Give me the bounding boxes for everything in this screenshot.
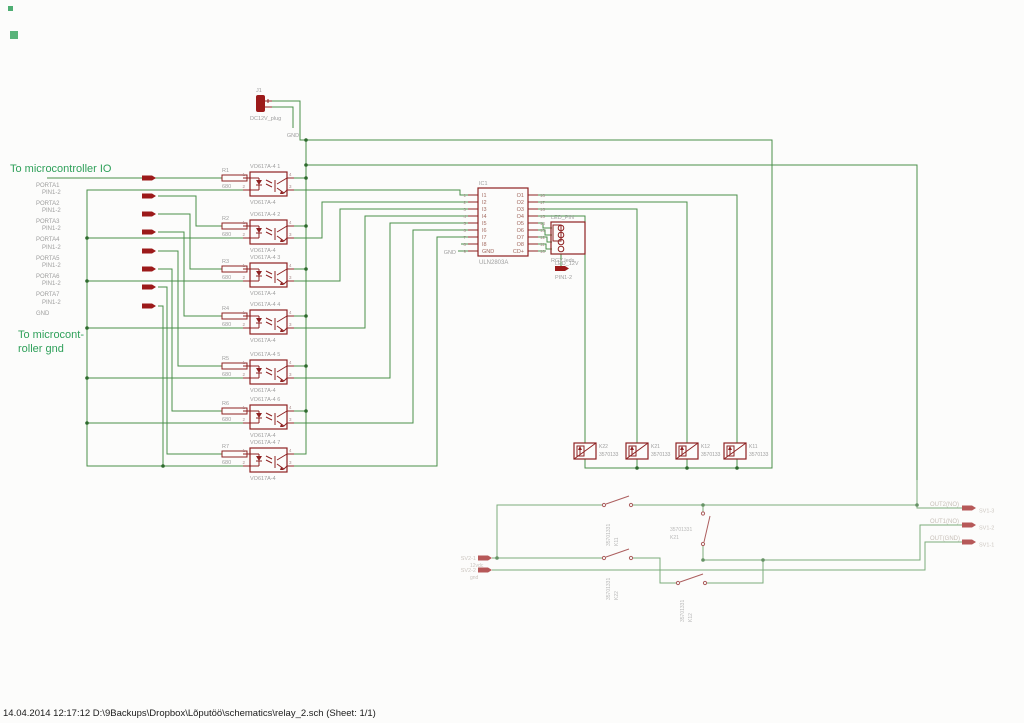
junction-dot	[85, 326, 89, 330]
ic-pin-number: 10	[540, 249, 546, 254]
schematic-viewport: To microcontroller IO To microcont- roll…	[0, 0, 1024, 723]
ic-pin-name: O8	[517, 242, 524, 248]
watermark-fragment	[10, 31, 18, 39]
contact-pin	[701, 512, 704, 515]
port-pin-label: PIN1-2	[42, 208, 61, 214]
port-name: PORTA3	[36, 219, 60, 225]
resistor-name: R3	[222, 259, 229, 265]
port-name: PORTA1	[36, 183, 60, 189]
port-pin-marker	[142, 212, 156, 217]
coil-symbol	[626, 443, 648, 459]
contact-name: K21	[670, 535, 679, 541]
junction-dot	[635, 466, 639, 470]
opto-pin-number: 3	[289, 460, 292, 465]
opto-value: VO617A-4	[250, 388, 276, 394]
resistor-value: 680	[222, 460, 231, 466]
plug-pins	[265, 99, 272, 107]
port-name: PORTA7	[36, 292, 60, 298]
coil-name: K21	[651, 444, 660, 450]
output-label: OUT(GND)	[930, 536, 960, 542]
port-name: PORTA2	[36, 201, 60, 207]
port-pin-marker	[142, 230, 156, 235]
opto-pin-number: 2	[242, 372, 245, 377]
opto-pin-number: 3	[289, 372, 292, 377]
opto-value: VO617A-4	[250, 476, 276, 482]
opto-symbol	[243, 448, 294, 472]
opto-name: VO617A-4 7	[250, 440, 280, 446]
ic-value: ULN2803A	[479, 260, 508, 266]
opto-symbol	[243, 405, 294, 429]
port-pin-label: PIN1-2	[42, 263, 61, 269]
coil-name: K22	[599, 444, 608, 450]
schematic-canvas: To microcontroller IO To microcont- roll…	[0, 0, 1024, 723]
watermark-fragment	[8, 6, 13, 11]
resistor-name: R2	[222, 216, 229, 222]
junction-dot	[304, 138, 308, 142]
coil-value: 3570133	[701, 452, 721, 458]
relay-coil-k12: K12 3570133	[676, 443, 721, 459]
opto-pin-number: 4	[289, 172, 292, 177]
opto-value: VO617A-4	[250, 291, 276, 297]
ic-pin-name: I6	[482, 228, 487, 234]
opto-value: VO617A-4	[250, 338, 276, 344]
opto-pin-number: 2	[242, 184, 245, 189]
junction-dot	[304, 267, 308, 271]
junction-dot	[304, 314, 308, 318]
contact-section: 35701331 K11 35701331 K21 35701331 K22 3…	[461, 480, 995, 622]
opto-pin-number: 2	[242, 460, 245, 465]
junction-dot	[701, 558, 705, 562]
input-pin-name: SV2-2	[461, 568, 476, 574]
opto-pin-number: 2	[242, 275, 245, 280]
contact-symbol	[602, 496, 632, 507]
ic-pin-name: O2	[517, 200, 524, 206]
resistor-name: R4	[222, 306, 229, 312]
opto-value: VO617A-4	[250, 248, 276, 254]
opto-pin-number: 3	[289, 184, 292, 189]
opto-name: VO617A-4 3	[250, 255, 280, 261]
ic-pin-name: I8	[482, 242, 487, 248]
opto-value: VO617A-4	[250, 200, 276, 206]
plug-value: DC12V_plug	[250, 116, 281, 122]
annotation-gnd-title-line1: To microcont-	[18, 329, 84, 341]
ic-pin-number: 14	[540, 221, 546, 226]
input-pin-sv2-2: SV2-2 gnd	[461, 568, 492, 582]
input-pin-marker	[478, 568, 492, 573]
output-label: OUT1(NO)	[930, 519, 959, 525]
ic-pin-number: 11	[540, 242, 545, 247]
port-pin-label: PIN1-2	[42, 245, 61, 251]
port-pin-label: PIN1-2	[42, 300, 61, 306]
opto-pin-number: 4	[289, 360, 292, 365]
contact-value: 35701331	[606, 524, 612, 546]
relay-contact-k12: 35701331 K12	[676, 574, 706, 622]
relay-contact-k11: 35701331 K11	[602, 496, 632, 546]
resistor-name: R7	[222, 444, 229, 450]
ic-pin-name: I5	[482, 221, 487, 227]
output-pin-name: SV1-2	[979, 526, 994, 532]
ic-pin-name: I1	[482, 193, 487, 199]
coil-value: 3570133	[749, 452, 769, 458]
contact-value: 35701331	[670, 527, 692, 533]
ic-pin-name: O4	[517, 214, 524, 220]
contact-symbol	[676, 574, 706, 585]
resistor-name: R1	[222, 168, 229, 174]
wires-top	[47, 101, 917, 480]
ic-pin-name: O3	[517, 207, 524, 213]
coil-name: K12	[701, 444, 710, 450]
resistor-name: R5	[222, 356, 229, 362]
junction-dot	[85, 236, 89, 240]
opto-value: VO617A-4	[250, 433, 276, 439]
optocoupler-1: R1 680 VO617A-4 1 VO617A-4 1 2 4 3	[222, 164, 294, 206]
input-pin-net: gnd	[470, 575, 479, 581]
opto-name: VO617A-4 5	[250, 352, 280, 358]
contact-name: K12	[688, 613, 694, 622]
dc-plug-j1: J1 DC12V_plug GND	[250, 88, 299, 139]
port-pin-label: PIN1-2	[42, 190, 61, 196]
led-header-name: LED_PIN	[551, 215, 574, 221]
output-pin-marker	[962, 523, 976, 528]
contact-pin	[701, 542, 704, 545]
relay-coil-k22: K22 3570133	[574, 443, 619, 459]
resistor-value: 680	[222, 322, 231, 328]
contact-value: 35701331	[606, 578, 612, 600]
port-pin-label: PIN1-2	[42, 281, 61, 287]
junction-dot	[304, 224, 308, 228]
junction-dot	[304, 364, 308, 368]
ic-pin-number: 17	[540, 200, 546, 205]
port-name: PORTA6	[36, 274, 60, 280]
junction-dots-top	[85, 138, 739, 470]
port-pin-label: PIN1-2	[42, 226, 61, 232]
led-port-label: LED_12V	[555, 261, 579, 267]
ic-pin-name: O7	[517, 235, 524, 241]
opto-name: VO617A-4 6	[250, 397, 280, 403]
optocoupler-2: R2 680 VO617A-4 2 VO617A-4 1 2 4 3	[222, 212, 294, 254]
optocoupler-4: R4 680 VO617A-4 4 VO617A-4 1 2 4 3	[222, 302, 294, 344]
junction-dot	[85, 279, 89, 283]
resistor-value: 680	[222, 372, 231, 378]
port-pin-marker	[142, 194, 156, 199]
led-port-pin: PIN1-2	[555, 275, 572, 281]
ic-pin-number: 16	[540, 207, 546, 212]
ic-pin-name: O5	[517, 221, 524, 227]
opto-name: VO617A-4 2	[250, 212, 280, 218]
coil-symbol	[724, 443, 746, 459]
status-bar: 14.04.2014 12:17:12 D:\9Backups\Dropbox\…	[3, 708, 376, 719]
plug-name: J1	[256, 88, 262, 94]
opto-symbol	[243, 172, 294, 196]
resistor-value: 680	[222, 184, 231, 190]
junction-dot	[304, 176, 308, 180]
ic-pin-name: I3	[482, 207, 487, 213]
junction-dot	[85, 421, 89, 425]
opto-pin-number: 2	[242, 322, 245, 327]
port-pin-marker	[142, 267, 156, 272]
ic-pin-name: I2	[482, 200, 487, 206]
annotation-gnd-title-line2: roller gnd	[18, 343, 64, 355]
relay-contact-k21: 35701331 K21	[670, 512, 710, 546]
led-12v-port: LED_12V PIN1-2	[555, 261, 579, 281]
opto-pin-number: 2	[242, 232, 245, 237]
ic-pin-name: I7	[482, 235, 487, 241]
wires-bottom	[492, 480, 965, 583]
ic-pin-name: I4	[482, 214, 487, 220]
mcu-ports: PORTA1 PIN1-2 PORTA2 PIN1-2 PORTA3 PIN1-…	[36, 176, 156, 318]
opto-pin-number: 3	[289, 232, 292, 237]
contact-name: K11	[614, 537, 620, 546]
resistor-name: R6	[222, 401, 229, 407]
opto-pin-number: 4	[289, 405, 292, 410]
port-pin-marker	[142, 176, 156, 181]
relay-contact-k22: 35701331 K22	[602, 549, 632, 600]
output-label: OUT2(NO)	[930, 502, 959, 508]
led-header-pin	[558, 246, 564, 252]
ic-pin-name: O6	[517, 228, 524, 234]
opto-name: VO617A-4 4	[250, 302, 280, 308]
junction-dot	[304, 409, 308, 413]
led-header: LED_PIN RGY leds	[551, 215, 585, 264]
ic-pin-number: 18	[540, 193, 546, 198]
opto-pin-number: 3	[289, 417, 292, 422]
input-pin-marker	[478, 556, 492, 561]
output-pin-marker	[962, 540, 976, 545]
junction-dot	[495, 556, 499, 560]
coil-name: K11	[749, 444, 758, 450]
ic-pin-name: GND	[482, 249, 494, 255]
coil-symbol	[676, 443, 698, 459]
ic-pin-number: 15	[540, 214, 546, 219]
junction-dot	[915, 503, 919, 507]
optocoupler-7: R7 680 VO617A-4 7 VO617A-4 1 2 4 3	[222, 440, 294, 482]
resistor-value: 680	[222, 417, 231, 423]
opto-pin-number: 3	[289, 322, 292, 327]
opto-symbol	[243, 263, 294, 287]
input-pin-sv2-1: SV2-1 12vdc	[461, 556, 492, 570]
ic-gnd-net: GND	[444, 250, 456, 256]
contact-blade	[704, 516, 710, 542]
junction-dot	[761, 558, 765, 562]
port-pin-marker	[142, 304, 156, 309]
relay-coil-k21: K21 3570133	[626, 443, 671, 459]
opto-name: VO617A-4 1	[250, 164, 280, 170]
optocoupler-5: R5 680 VO617A-4 5 VO617A-4 1 2 4 3	[222, 352, 294, 394]
relay-coil-k11: K11 3570133	[724, 443, 769, 459]
ic-pin-number: 12	[540, 235, 546, 240]
junction-dot	[304, 163, 308, 167]
resistor-value: 680	[222, 232, 231, 238]
contact-symbol	[602, 549, 632, 560]
input-pin-name: SV2-1	[461, 556, 476, 562]
ic-pin-name: CD+	[513, 249, 524, 255]
optocoupler-3: R3 680 VO617A-4 3 VO617A-4 1 2 4 3	[222, 255, 294, 297]
junction-dot	[685, 466, 689, 470]
coil-symbol	[574, 443, 596, 459]
opto-pin-number: 3	[289, 275, 292, 280]
port-name: PORTA4	[36, 237, 60, 243]
junction-dot	[701, 503, 705, 507]
port-name: PORTA5	[36, 256, 60, 262]
opto-pin-number: 4	[289, 448, 292, 453]
contact-name: K22	[614, 591, 620, 600]
junction-dot	[85, 376, 89, 380]
contact-value: 35701331	[680, 600, 686, 622]
opto-pin-number: 2	[242, 417, 245, 422]
opto-pin-number: 4	[289, 310, 292, 315]
coil-value: 3570133	[599, 452, 619, 458]
port-pin-marker	[142, 249, 156, 254]
coil-value: 3570133	[651, 452, 671, 458]
output-pin-name: SV1-1	[979, 543, 994, 549]
junction-dot	[735, 466, 739, 470]
opto-symbol	[243, 220, 294, 244]
ic-pin-name: O1	[517, 193, 524, 199]
ic-name: IC1	[479, 181, 488, 187]
port-pin-marker	[142, 285, 156, 290]
plug-gnd-net: GND	[287, 133, 299, 139]
opto-symbol	[243, 360, 294, 384]
junction-dot	[161, 464, 165, 468]
ic-pin-number: 13	[540, 228, 546, 233]
opto-pin-number: 4	[289, 220, 292, 225]
port-name: GND	[36, 311, 50, 317]
output-pin-name: SV1-3	[979, 509, 994, 515]
resistor-value: 680	[222, 275, 231, 281]
output-pin-marker	[962, 506, 976, 511]
opto-pin-number: 4	[289, 263, 292, 268]
annotation-io-title: To microcontroller IO	[10, 163, 112, 175]
plug-symbol	[256, 95, 265, 112]
led-header-body	[551, 222, 585, 254]
opto-symbol	[243, 310, 294, 334]
optocoupler-6: R6 680 VO617A-4 6 VO617A-4 1 2 4 3	[222, 397, 294, 439]
